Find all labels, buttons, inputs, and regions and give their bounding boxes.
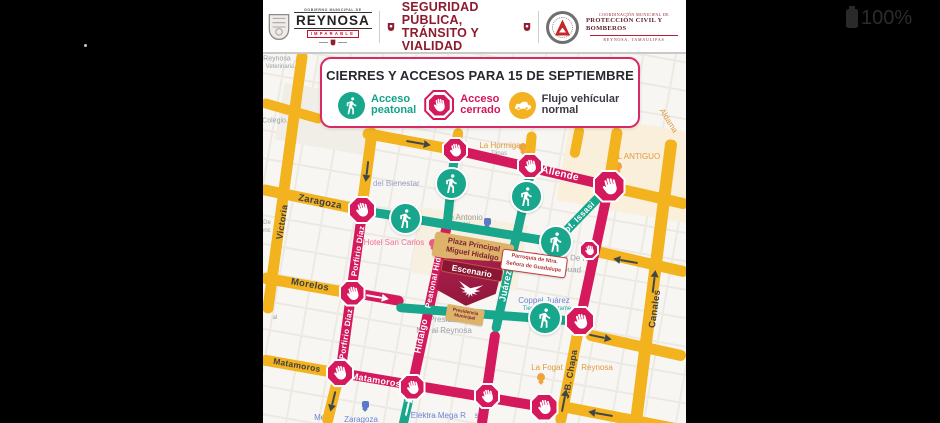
poi-label: al — [273, 315, 278, 321]
mini-shield-icon — [523, 22, 531, 32]
stop-hand-icon — [399, 374, 426, 401]
reynosa-tamaulipas-label: REYNOSA, TAMAULIPAS — [603, 37, 664, 42]
secretaria-line1: SEGURIDAD PÚBLICA, — [402, 1, 516, 27]
secretaria-line2: TRÁNSITO Y VIALIDAD — [402, 27, 516, 53]
legend-label: Acceso cerrado — [460, 94, 500, 116]
years-ornament — [319, 39, 347, 46]
poster: GOBIERNO MUNICIPAL DE REYNOSA IMPARABLE … — [263, 0, 686, 423]
stop-hand-icon — [593, 170, 626, 203]
municipal-logo: GOBIERNO MUNICIPAL DE REYNOSA IMPARABLE — [267, 8, 372, 46]
stop-hand-icon — [565, 306, 595, 336]
legend-label: Acceso peatonal — [371, 94, 416, 116]
header: GOBIERNO MUNICIPAL DE REYNOSA IMPARABLE … — [263, 0, 686, 54]
legend-item-peatonal: Acceso peatonal — [338, 92, 416, 119]
poi-label: La Hormiga — [479, 142, 520, 150]
stop-hand-icon — [579, 240, 599, 260]
poi-label: Reynosa — [263, 55, 291, 62]
imparable-tag: IMPARABLE — [307, 30, 359, 38]
poi-label: Reynosa — [581, 364, 613, 372]
map-pin-icon — [484, 218, 491, 225]
red-rule — [590, 35, 678, 37]
poi-label: Elektra Mega R sa — [411, 412, 483, 420]
legend-title: CIERRES Y ACCESOS PARA 15 DE SEPTIEMBRE — [322, 68, 638, 83]
status-bar: 100% — [846, 7, 912, 30]
poi-label: Colegio.. — [263, 117, 290, 124]
battery-level: 100% — [861, 7, 912, 30]
secretaria-title: SECRETARÍA DE SEGURIDAD PÚBLICA, TRÁNSIT… — [402, 0, 516, 60]
stop-hand-icon — [474, 383, 500, 409]
street-closure-map: Plaza Principal Miguel Hidalgo Escenario… — [263, 54, 686, 423]
stop-hand-icon — [517, 153, 543, 179]
mini-shield-icon — [387, 22, 395, 32]
mini-shield-icon — [330, 39, 336, 46]
pedestrian-icon — [528, 301, 562, 335]
poi-label: La Fogat — [531, 364, 563, 372]
car-icon — [509, 92, 536, 119]
proteccion-civil-logo — [546, 11, 579, 44]
divider — [379, 11, 380, 43]
pedestrian-icon — [510, 180, 543, 213]
divider — [538, 11, 539, 43]
pedestrian-icon — [389, 202, 422, 235]
pedestrian-icon — [435, 167, 468, 200]
legend-item-normal: Flujo vehícular normal — [509, 92, 620, 119]
poi-label: o del Bienestar — [366, 180, 419, 188]
coat-of-arms-icon — [267, 13, 291, 41]
legend-panel: CIERRES Y ACCESOS PARA 15 DE SEPTIEMBRE … — [320, 57, 640, 128]
poi-label: L ANTIGUO — [618, 153, 660, 161]
reynosa-wordmark: REYNOSA — [294, 12, 372, 30]
stop-hand-icon — [348, 196, 376, 224]
stop-hand-icon — [530, 393, 559, 422]
poi-label: De — [263, 220, 271, 226]
poi-label: Hotel San Carlos — [364, 239, 424, 247]
stop-hand-icon — [424, 90, 454, 120]
pedestrian-icon — [338, 92, 365, 119]
poi-label: Zaragoza — [344, 416, 378, 423]
battery-icon — [846, 9, 858, 28]
proteccion-label: PROTECCIÓN CIVIL Y BOMBEROS — [586, 17, 682, 34]
stop-hand-icon — [339, 280, 366, 307]
poi-label: Veterinaria — [266, 64, 295, 70]
cursor-dot — [84, 44, 87, 47]
stop-hand-icon — [442, 137, 468, 163]
map-pin-icon — [537, 373, 545, 381]
proteccion-civil-text: COORDINACIÓN MUNICIPAL DE PROTECCIÓN CIV… — [586, 12, 682, 43]
poi-label: ync — [263, 228, 271, 234]
map-pin-icon — [362, 401, 369, 408]
stop-hand-icon — [326, 359, 354, 387]
legend-label: Flujo vehícular normal — [542, 94, 620, 116]
legend-item-cerrado: Acceso cerrado — [424, 90, 500, 120]
